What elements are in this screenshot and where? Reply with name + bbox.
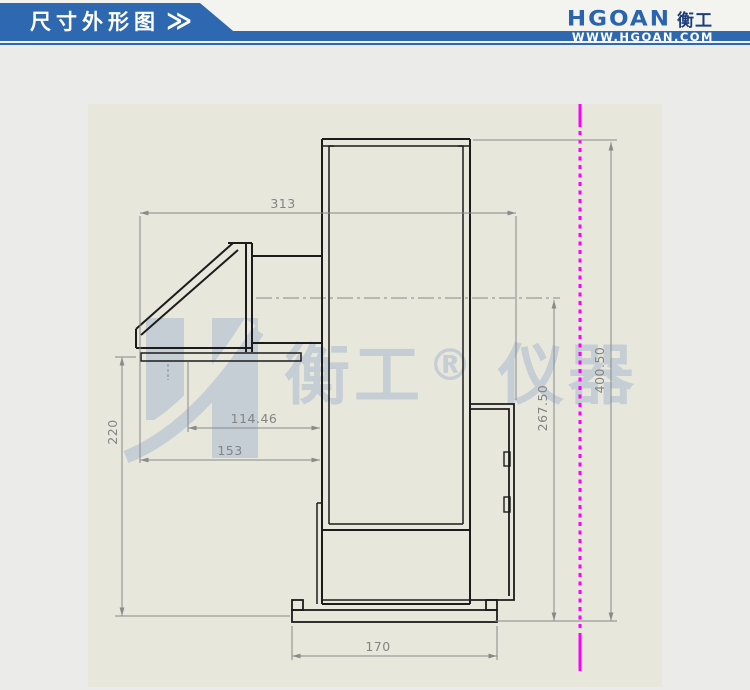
website-link[interactable]: WWW.HGOAN.COM — [572, 30, 714, 44]
dim-label: 313 — [270, 196, 295, 211]
page: 衡工®仪器 — [0, 0, 750, 690]
dim-label: 400.50 — [592, 347, 607, 394]
dim-label: 153 — [217, 443, 242, 458]
brand-logo[interactable]: HGOAN 衡工 — [567, 6, 713, 32]
dim-label: 114.46 — [231, 411, 278, 426]
brand-logo-text: HGOAN — [567, 7, 671, 31]
chevrons-icon: ≫ — [166, 6, 188, 35]
section-title-banner: 尺寸外形图 ≫ — [0, 3, 245, 41]
dimension-diagram: 衡工®仪器 — [0, 0, 750, 690]
header: 尺寸外形图 ≫ HGOAN 衡工 WWW.HGOAN.COM — [0, 0, 750, 45]
dim-label: 220 — [105, 419, 120, 444]
dim-label: 267.50 — [535, 385, 550, 432]
dim-label: 170 — [365, 639, 390, 654]
brand-logo-cn: 衡工 — [677, 6, 713, 31]
section-title: 尺寸外形图 — [30, 3, 160, 41]
